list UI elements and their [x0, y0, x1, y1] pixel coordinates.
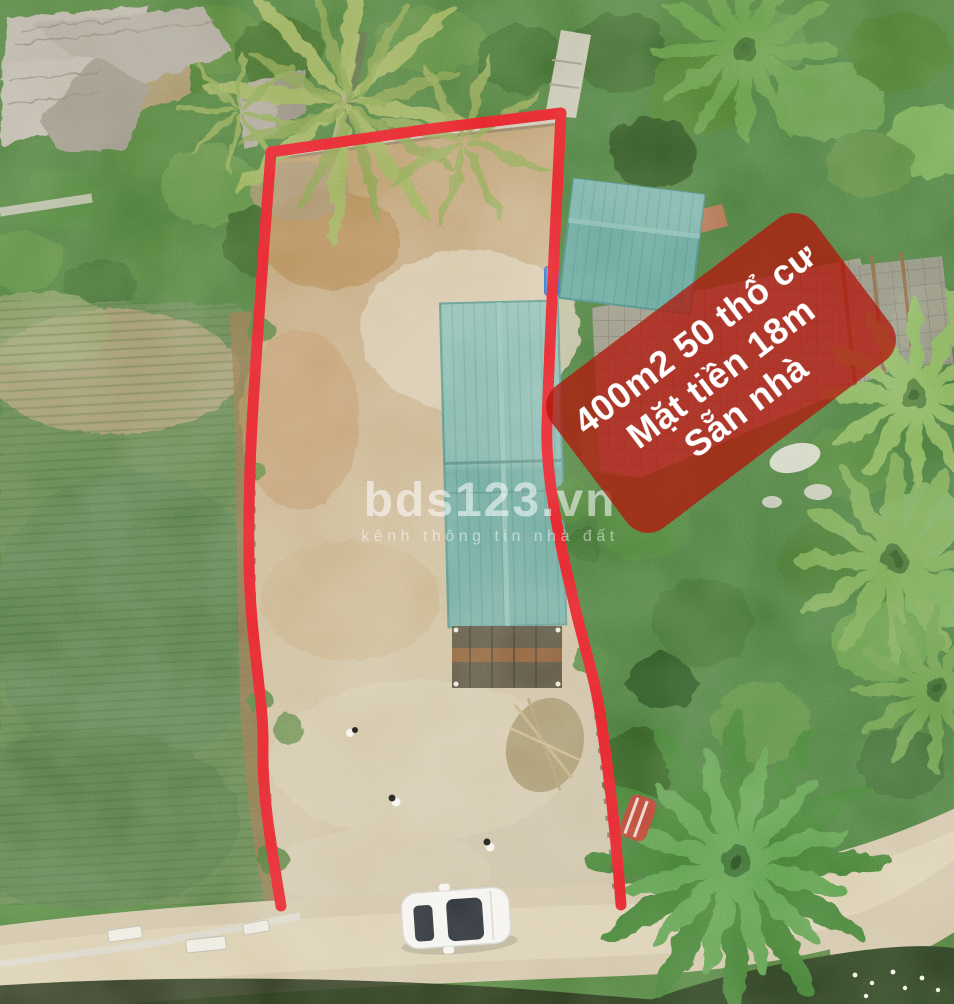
aerial-photo: bds123.vn kênh thông tin nhà đất 400m2 5… [0, 0, 954, 1004]
watermark-subtitle: kênh thông tin nhà đất [322, 528, 658, 546]
